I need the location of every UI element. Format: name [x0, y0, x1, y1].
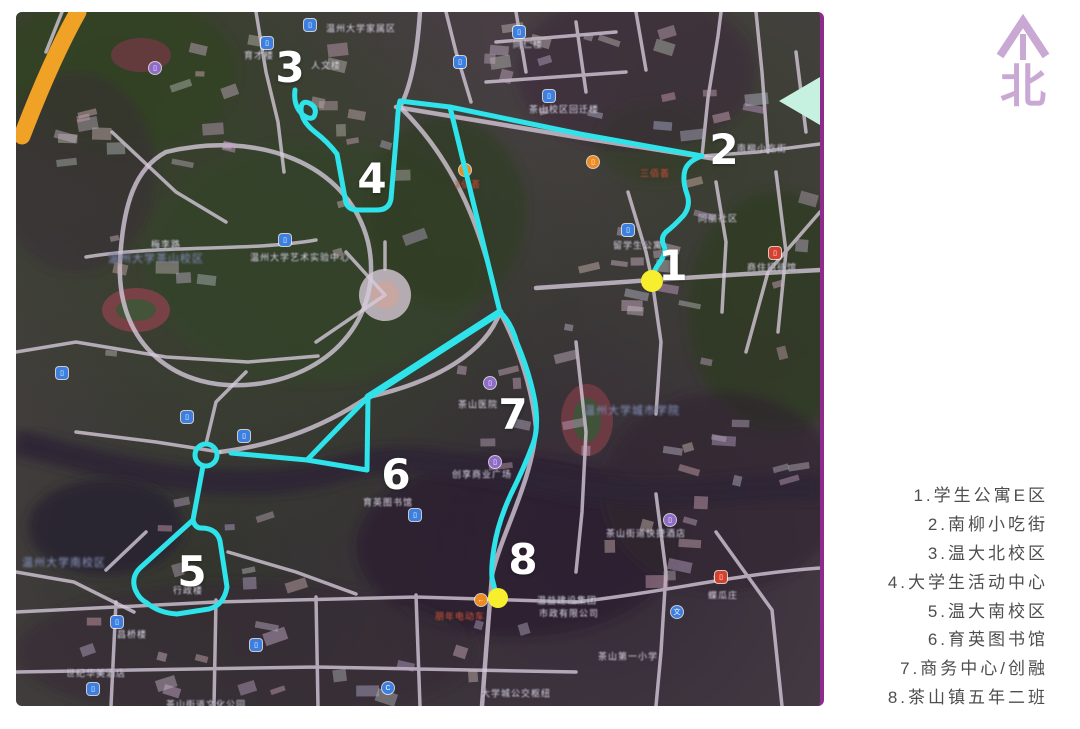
- legend-item-6: 6.育英图书馆: [728, 626, 1048, 655]
- legend-item-8: 8.茶山镇五年二班: [728, 684, 1048, 713]
- annotated-map-page: 温州大学家属区人文楼育才楼同仁楼茶山校区回迁楼温州大学茶山校区温州大学艺术实验中…: [0, 0, 1080, 729]
- stop-number-7: 7: [498, 394, 527, 436]
- legend-item-1: 1.学生公寓E区: [728, 482, 1048, 511]
- legend-item-7: 7.商务中心/创融: [728, 655, 1048, 684]
- stop-number-5: 5: [177, 551, 206, 593]
- direction-triangle-icon: [779, 77, 820, 125]
- route-legend: 1.学生公寓E区2.南柳小吃街3.温大北校区4.大学生活动中心5.温大南校区6.…: [728, 482, 1048, 713]
- stop-number-layer: 12345678: [16, 12, 820, 706]
- stop-number-1: 1: [658, 245, 687, 287]
- legend-item-2: 2.南柳小吃街: [728, 511, 1048, 540]
- satellite-map: 温州大学家属区人文楼育才楼同仁楼茶山校区回迁楼温州大学茶山校区温州大学艺术实验中…: [16, 12, 824, 706]
- north-arrow-icon: [990, 12, 1056, 62]
- legend-item-5: 5.温大南校区: [728, 598, 1048, 627]
- north-label: 北: [986, 63, 1060, 109]
- legend-item-3: 3.温大北校区: [728, 540, 1048, 569]
- stop-number-4: 4: [357, 158, 386, 200]
- stop-number-8: 8: [508, 539, 537, 581]
- legend-item-4: 4.大学生活动中心: [728, 569, 1048, 598]
- stop-number-6: 6: [381, 454, 410, 496]
- stop-number-2: 2: [709, 129, 738, 171]
- compass-north: 北: [986, 12, 1060, 109]
- stop-number-3: 3: [275, 47, 304, 89]
